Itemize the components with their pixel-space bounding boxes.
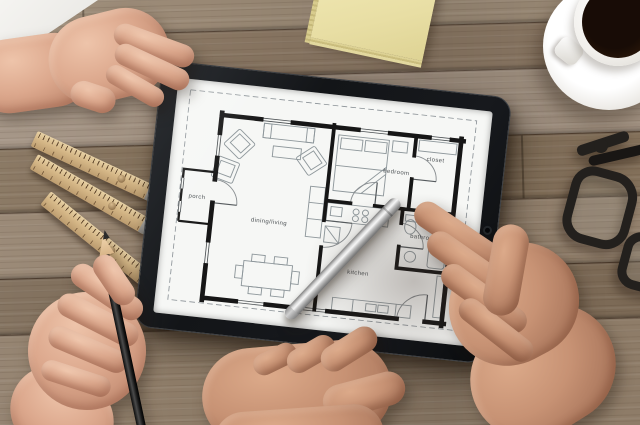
tablet: porch dining/living bedroom closet bathr… [134, 60, 513, 364]
tablet-camera-icon [485, 228, 491, 234]
screen-glare [153, 78, 493, 347]
tablet-screen: porch dining/living bedroom closet bathr… [153, 78, 493, 347]
glasses-hinge [594, 139, 608, 153]
photo-scene: porch dining/living bedroom closet bathr… [0, 0, 640, 425]
